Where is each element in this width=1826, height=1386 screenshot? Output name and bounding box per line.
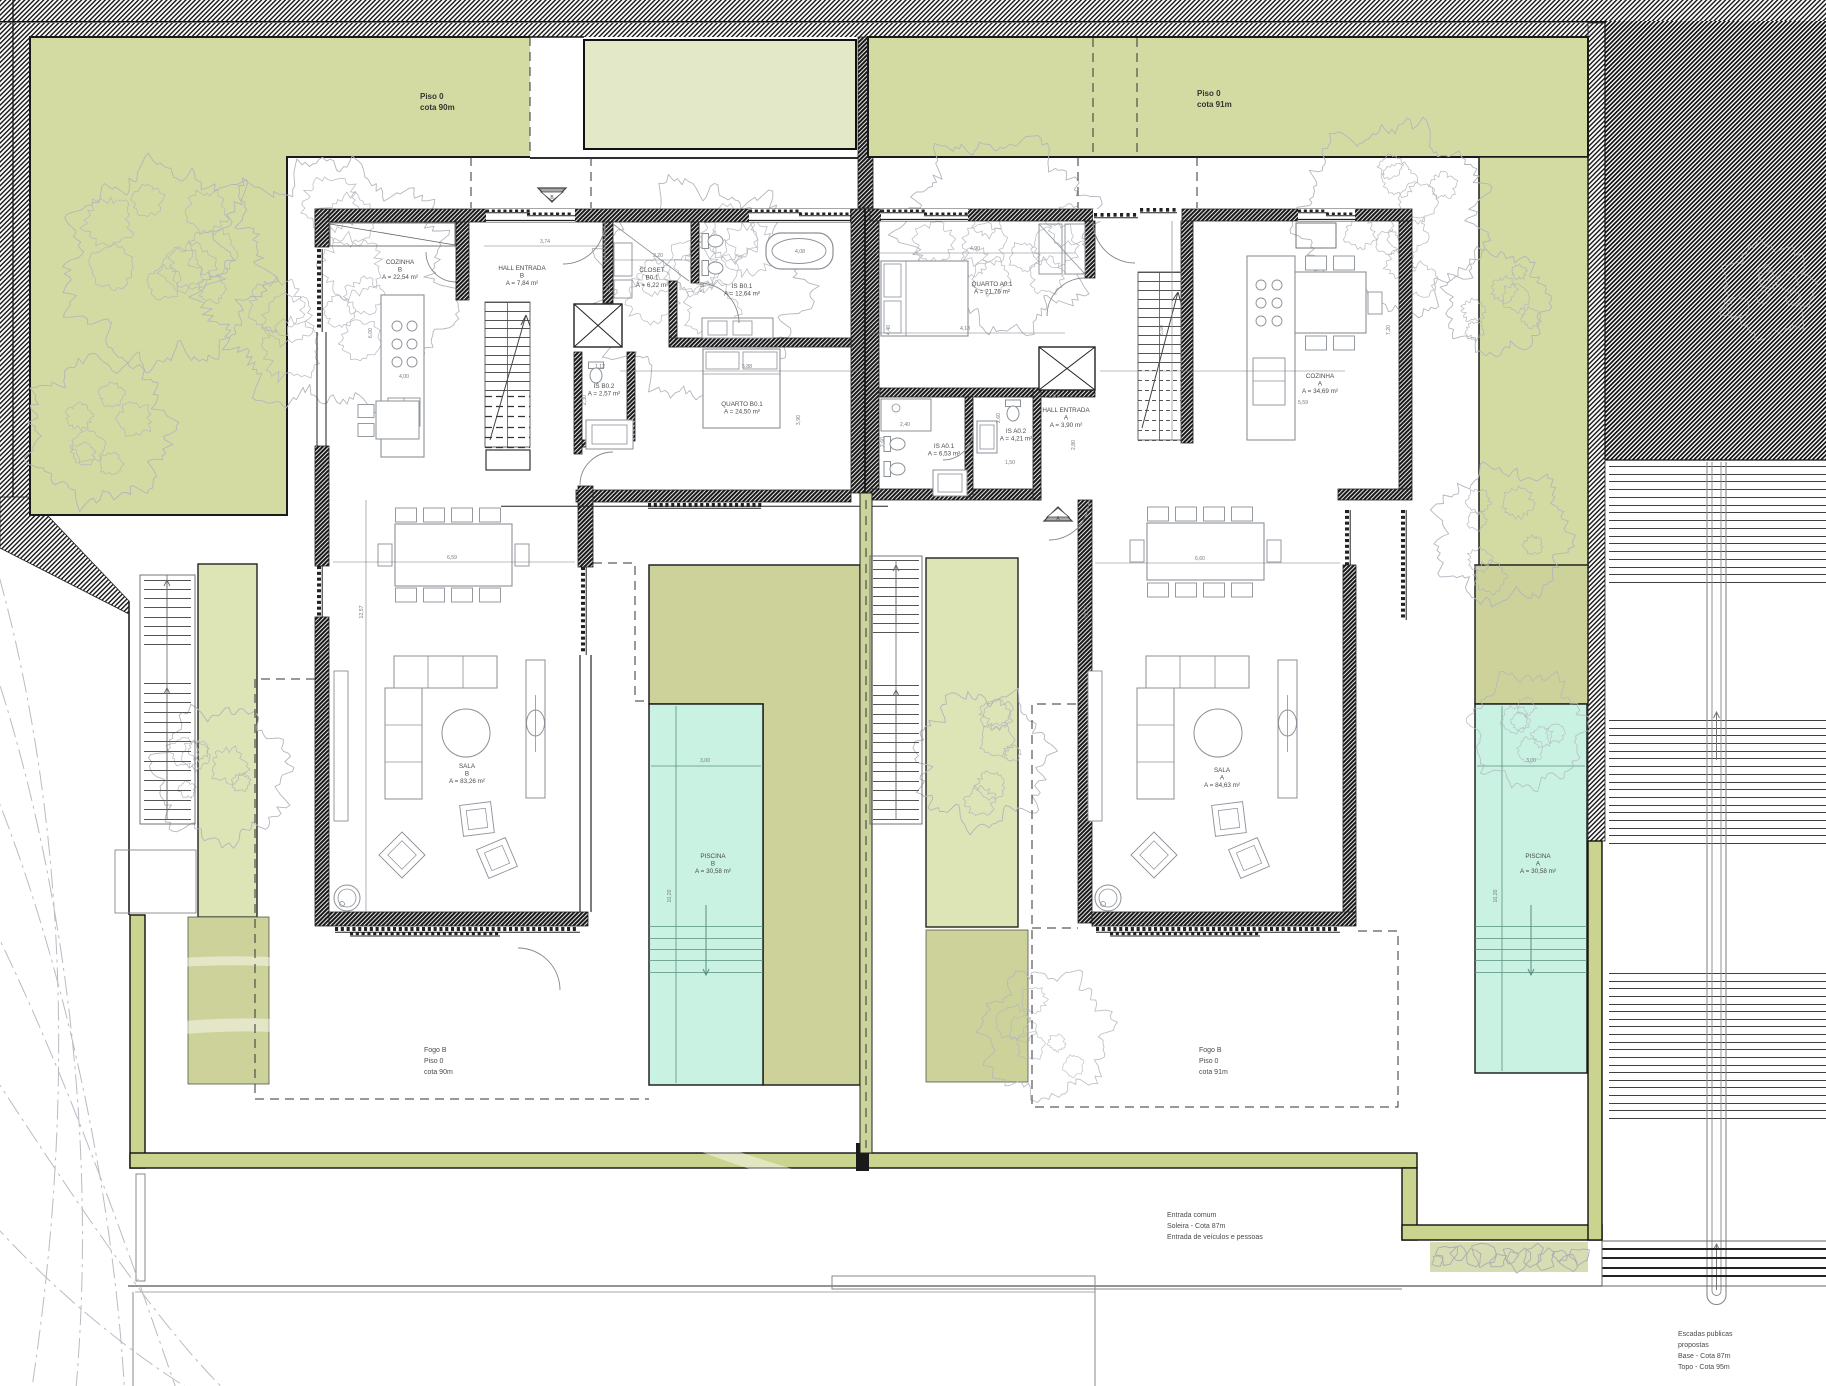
svg-text:4,40: 4,40 [886, 325, 892, 335]
svg-text:12,57: 12,57 [359, 605, 365, 618]
svg-text:5,88: 5,88 [742, 364, 752, 370]
svg-text:3,10: 3,10 [700, 282, 706, 292]
svg-text:3,00: 3,00 [700, 758, 710, 764]
svg-text:QUARTO B0.1A = 24,50 m²: QUARTO B0.1A = 24,50 m² [721, 401, 763, 415]
svg-text:4,08: 4,08 [795, 249, 805, 255]
svg-text:6,00: 6,00 [368, 328, 374, 338]
svg-text:5,59: 5,59 [1298, 400, 1308, 406]
svg-text:4,18: 4,18 [960, 326, 970, 332]
svg-text:10,20: 10,20 [667, 889, 673, 902]
svg-text:2,60: 2,60 [996, 413, 1002, 423]
svg-text:4,00: 4,00 [399, 374, 409, 380]
svg-text:6,60: 6,60 [1195, 556, 1205, 562]
svg-text:2,80: 2,80 [1071, 440, 1077, 450]
svg-text:2,60: 2,60 [880, 437, 886, 447]
svg-text:3,90: 3,90 [796, 415, 802, 425]
svg-text:2,40: 2,40 [900, 422, 910, 428]
svg-text:1,50: 1,50 [1005, 460, 1015, 466]
svg-text:12,77: 12,77 [1084, 605, 1090, 618]
svg-text:5,60: 5,60 [1159, 325, 1165, 335]
svg-text:1,40: 1,40 [1048, 394, 1058, 400]
svg-text:2,10: 2,10 [606, 282, 612, 292]
svg-text:3,74: 3,74 [540, 239, 550, 245]
svg-text:QUARTO A0.1A = 21,76 m²: QUARTO A0.1A = 21,76 m² [971, 281, 1013, 295]
svg-text:2,20: 2,20 [653, 253, 663, 259]
svg-text:2,30: 2,30 [582, 395, 588, 405]
svg-text:10,20: 10,20 [1493, 889, 1499, 902]
svg-text:4,90: 4,90 [970, 246, 980, 252]
svg-text:6,59: 6,59 [447, 555, 457, 561]
svg-text:7,20: 7,20 [1386, 325, 1392, 335]
svg-text:1,12: 1,12 [595, 364, 605, 370]
